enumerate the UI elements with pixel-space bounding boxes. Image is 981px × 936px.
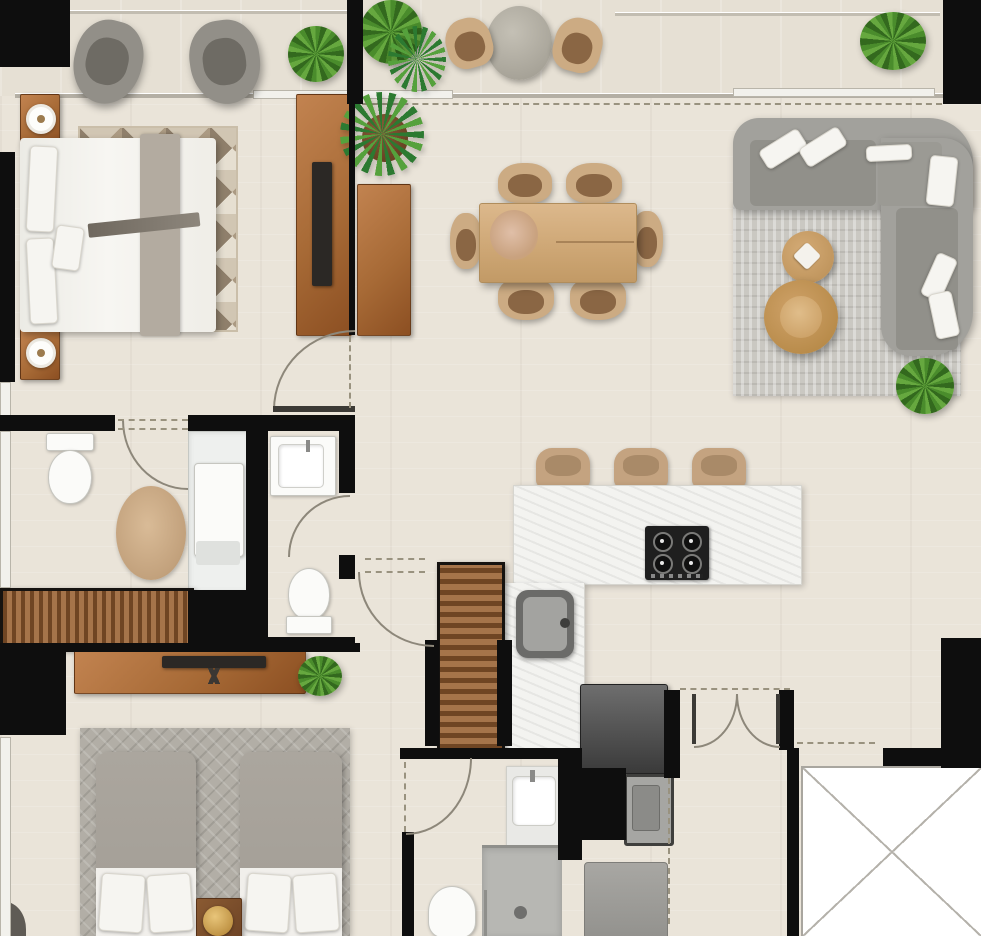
chair-seat bbox=[558, 30, 596, 68]
tv-on-console bbox=[162, 656, 266, 668]
chair-seat bbox=[456, 229, 476, 261]
bed-pillow bbox=[292, 873, 340, 934]
entry-door-leaf bbox=[692, 694, 696, 744]
oval-bath-rug bbox=[116, 486, 186, 580]
wall bbox=[0, 0, 70, 67]
washer-door bbox=[632, 785, 660, 831]
vanity-basin bbox=[512, 776, 556, 826]
wall bbox=[339, 431, 355, 493]
entry-door-leaf bbox=[776, 694, 780, 744]
wall bbox=[349, 104, 355, 335]
wall bbox=[580, 768, 626, 840]
bedroom2-plant bbox=[298, 656, 342, 696]
chair-seat bbox=[452, 29, 488, 65]
wall bbox=[188, 415, 355, 431]
tv-stand-legs bbox=[186, 668, 242, 684]
hob-burner bbox=[653, 554, 673, 574]
bath-opening-dashed bbox=[118, 428, 188, 430]
sofa-chaise-cushion bbox=[925, 155, 958, 208]
washing-machine bbox=[624, 774, 674, 846]
wall bbox=[0, 645, 66, 735]
shower-drain bbox=[514, 906, 527, 919]
balcony-round-table bbox=[486, 6, 552, 80]
chair-seat bbox=[508, 290, 544, 314]
dining-chair bbox=[498, 278, 554, 320]
wall bbox=[943, 0, 981, 104]
stool-seat bbox=[545, 455, 582, 476]
dining-chair bbox=[450, 213, 482, 269]
chair-cushion bbox=[81, 34, 133, 89]
master-bedroom-door-leaf bbox=[273, 406, 355, 412]
tv-screen bbox=[312, 162, 332, 286]
bed-pillow bbox=[244, 873, 292, 934]
shower-seat bbox=[196, 541, 240, 565]
toilet-bowl bbox=[48, 450, 92, 504]
corridor-dashed bbox=[797, 742, 875, 744]
wall-pillar bbox=[347, 0, 363, 104]
bed-pillow bbox=[146, 873, 194, 934]
hob-burner bbox=[682, 532, 702, 552]
refrigerator bbox=[580, 684, 668, 774]
wall bbox=[497, 640, 512, 746]
bed-pillow bbox=[26, 145, 58, 232]
second-bedroom-door-arc bbox=[406, 758, 472, 835]
entry-door-arc-right bbox=[736, 694, 780, 748]
utility-opening-dashed bbox=[668, 778, 670, 924]
balcony-railing bbox=[65, 10, 347, 14]
dining-chair bbox=[570, 278, 626, 320]
wall bbox=[787, 748, 799, 936]
wall bbox=[941, 638, 981, 768]
door-frame-dashed bbox=[349, 336, 351, 408]
closet-dashed bbox=[365, 558, 425, 560]
hob-burner bbox=[653, 532, 673, 552]
stool-seat bbox=[701, 455, 738, 476]
basin-faucet bbox=[530, 770, 535, 782]
toilet-tank bbox=[46, 433, 94, 451]
living-room-plant bbox=[896, 358, 954, 414]
dining-chair bbox=[498, 163, 552, 203]
master-bath-door-arc bbox=[122, 420, 188, 490]
shower-area bbox=[482, 845, 562, 936]
closet-dashed bbox=[365, 571, 425, 573]
sink-faucet bbox=[560, 618, 570, 628]
wall bbox=[558, 748, 582, 860]
wall bbox=[425, 640, 439, 746]
entry-door-dashed bbox=[680, 688, 790, 690]
gas-hob bbox=[645, 526, 709, 580]
threshold-dashed-line bbox=[362, 103, 942, 105]
elevator-shaft-x bbox=[801, 766, 981, 936]
hob-burner bbox=[682, 554, 702, 574]
chair-seat bbox=[637, 227, 657, 259]
stool-seat bbox=[623, 455, 660, 476]
toilet-bowl bbox=[428, 886, 476, 936]
hall-console-table bbox=[357, 184, 411, 336]
bath-opening-dashed bbox=[118, 419, 188, 421]
coffee-table-large-center bbox=[780, 296, 822, 338]
gold-table-lamp bbox=[203, 906, 233, 936]
utility-appliance bbox=[584, 862, 668, 936]
window bbox=[0, 382, 11, 417]
entry-door-arc-left bbox=[694, 694, 738, 748]
floor-plan bbox=[0, 0, 981, 936]
toilet-bowl bbox=[288, 568, 330, 620]
sliding-door-panel bbox=[733, 88, 935, 97]
second-bedroom-door-leaf bbox=[404, 762, 406, 832]
bar-stool bbox=[614, 448, 668, 488]
chair-seat bbox=[580, 290, 616, 314]
wall bbox=[664, 690, 680, 778]
balcony-plant-right bbox=[860, 12, 926, 70]
wall bbox=[188, 590, 268, 647]
bar-stool bbox=[536, 448, 590, 488]
wall-door-post bbox=[779, 690, 794, 750]
balcony-plant bbox=[288, 26, 344, 82]
wall bbox=[339, 555, 355, 579]
wall bbox=[0, 152, 15, 382]
bed-throw-blanket bbox=[140, 134, 180, 336]
middle-bathroom-door-arc bbox=[288, 495, 350, 557]
shower-glass-line bbox=[484, 890, 487, 936]
hob-knobs bbox=[651, 574, 703, 578]
hall-closet-door-arc bbox=[358, 572, 434, 647]
table-centerpiece bbox=[490, 210, 538, 260]
wall bbox=[402, 832, 414, 936]
table-lamp bbox=[26, 104, 56, 134]
bed-pillow bbox=[98, 873, 146, 934]
louvered-wardrobe bbox=[0, 588, 194, 650]
toilet-tank bbox=[286, 616, 332, 634]
table-lamp bbox=[26, 338, 56, 368]
balcony-tall-plants-2 bbox=[388, 26, 446, 92]
bar-stool bbox=[692, 448, 746, 488]
chair-seat bbox=[576, 174, 612, 197]
dining-table-seam bbox=[556, 241, 634, 243]
sofa-cushion bbox=[866, 144, 913, 162]
chair-seat bbox=[508, 174, 543, 197]
chair-cushion bbox=[200, 36, 249, 88]
louvered-pantry-closet bbox=[437, 562, 505, 752]
dining-chair bbox=[566, 163, 622, 203]
basin-faucet bbox=[306, 440, 310, 452]
washbasin bbox=[278, 444, 324, 488]
master-bedroom-door-arc bbox=[273, 330, 355, 410]
window bbox=[0, 737, 11, 936]
window bbox=[0, 431, 11, 588]
wall bbox=[0, 415, 115, 431]
